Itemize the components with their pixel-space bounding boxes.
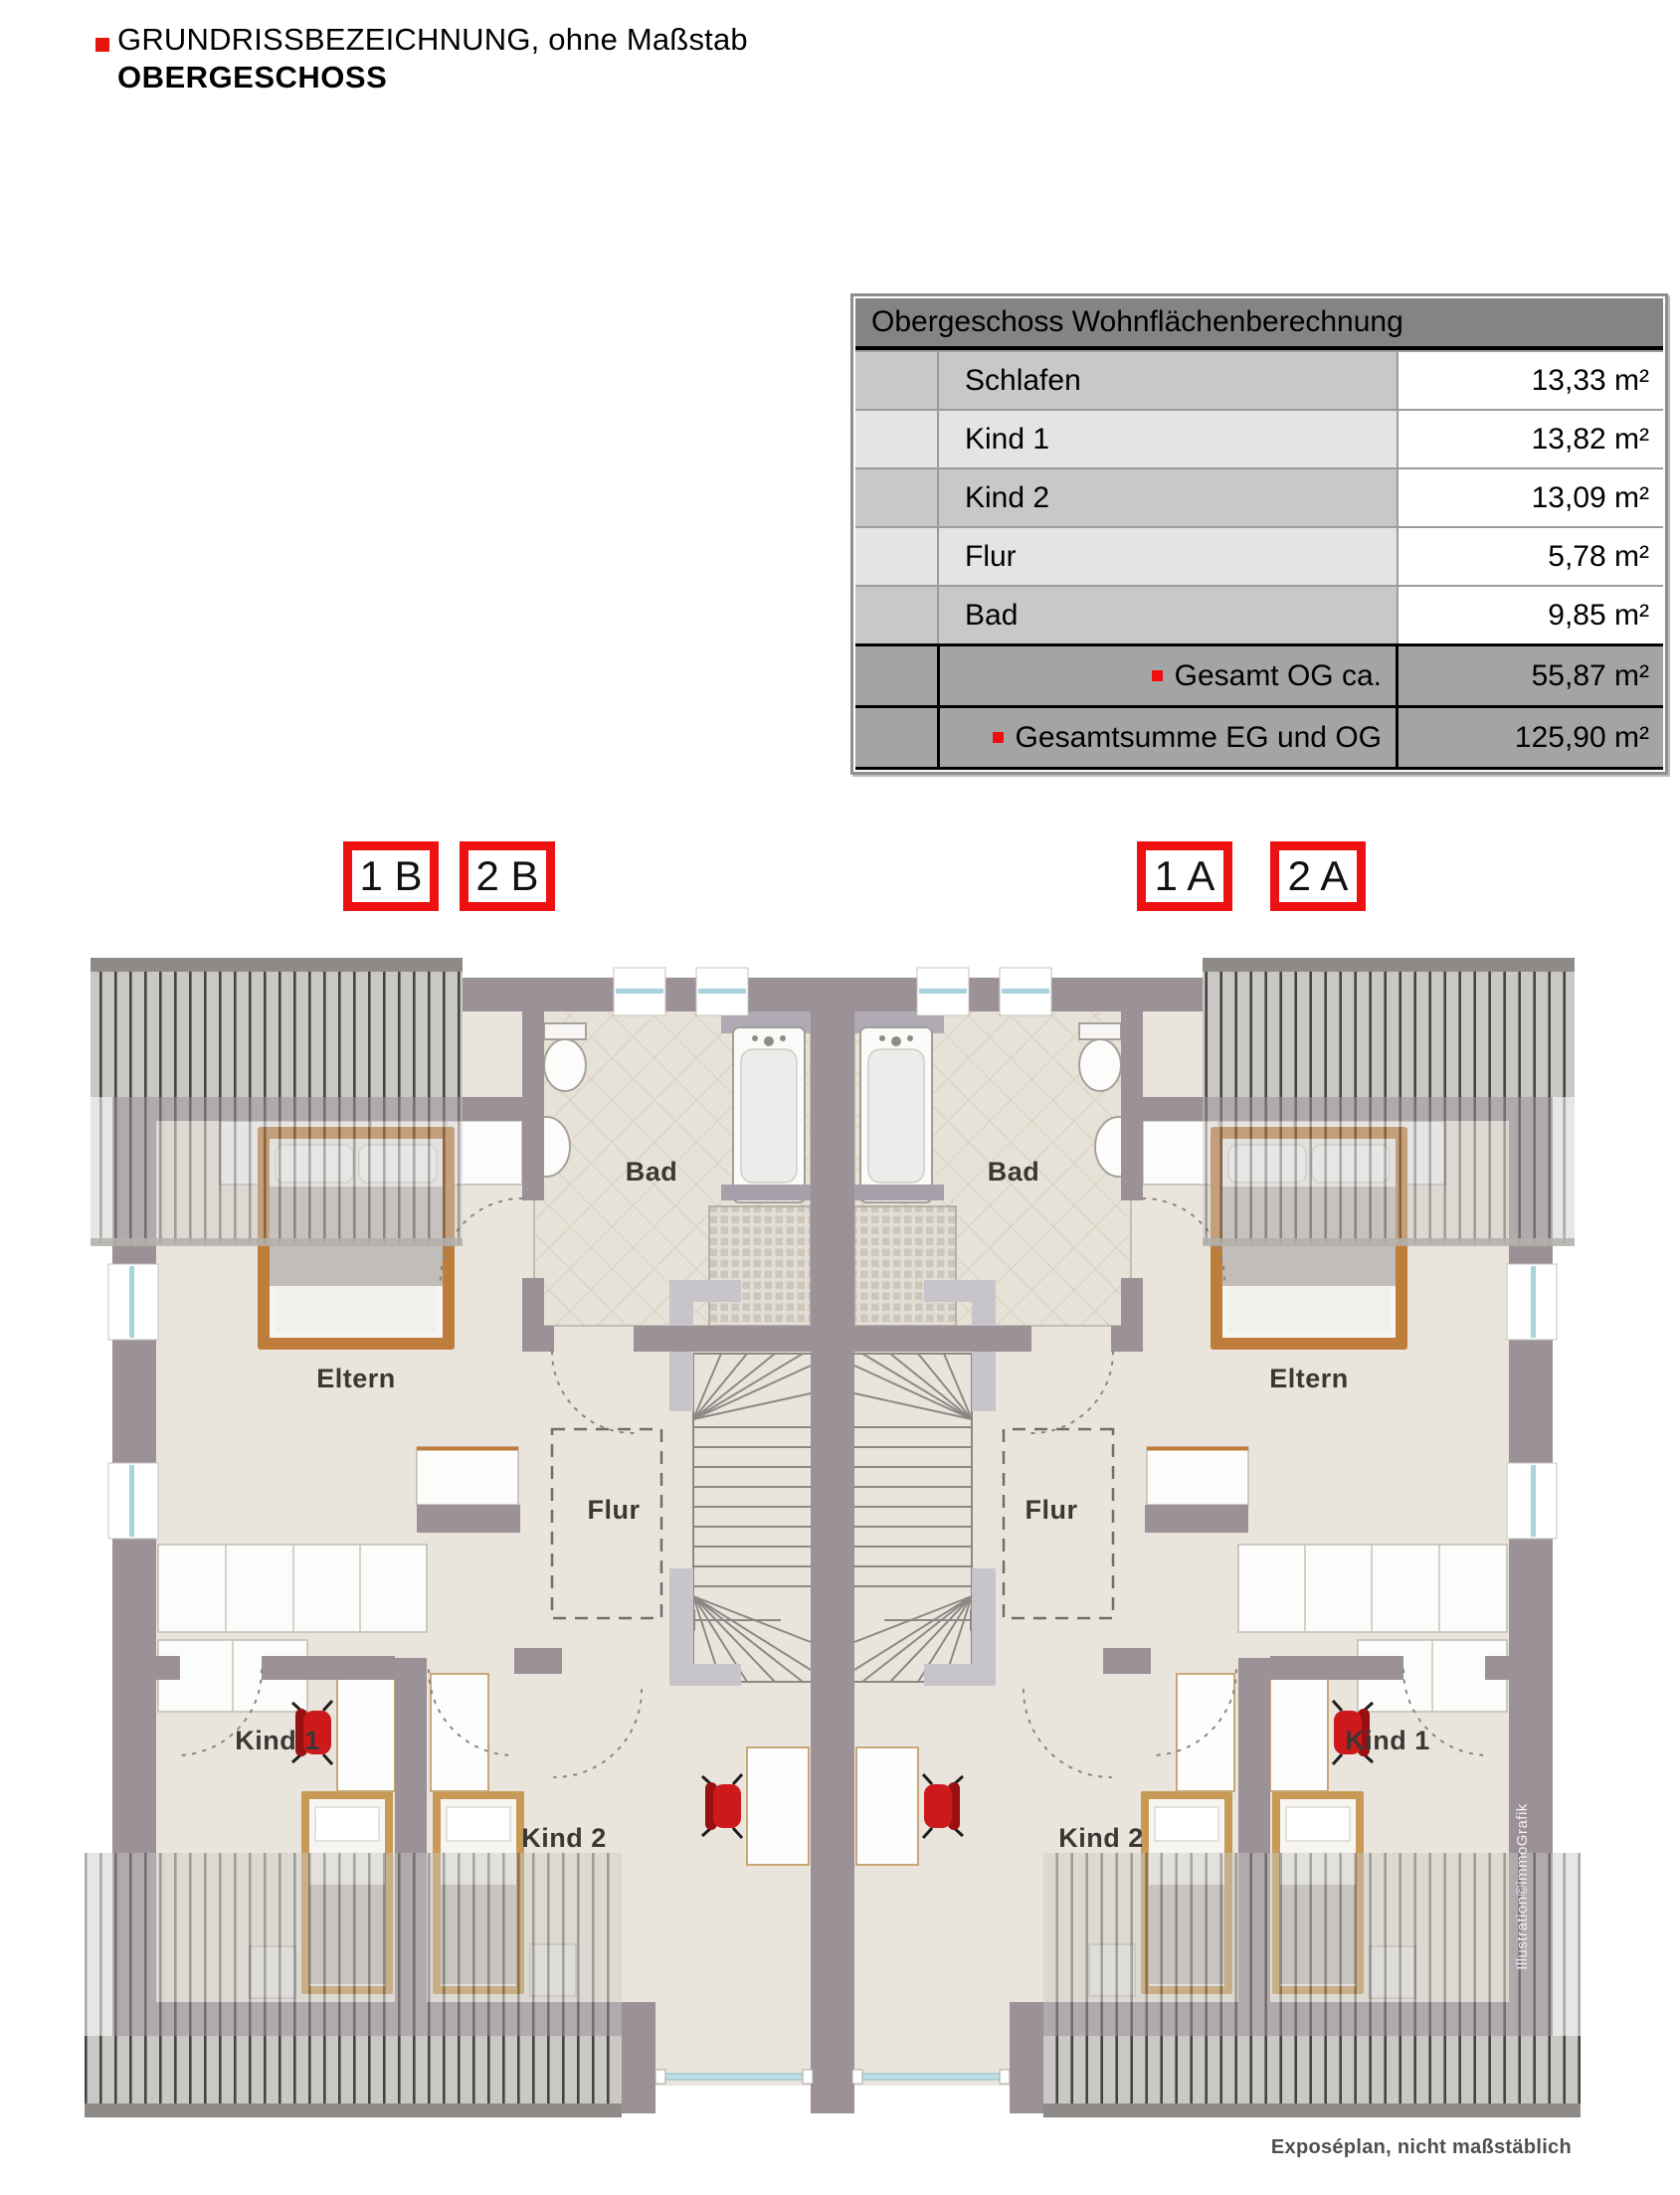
row-spacer-cell	[855, 708, 940, 767]
red-bullet-icon	[993, 732, 1004, 743]
area-table-title: Obergeschoss Wohnflächenberechnung	[855, 298, 1663, 350]
scale-footnote: Exposéplan, nicht maßstäblich	[1271, 2136, 1572, 2159]
table-row: Kind 1 13,82 m²	[855, 409, 1663, 467]
area-table: Obergeschoss Wohnflächenberechnung Schla…	[850, 293, 1668, 775]
red-bullet-icon	[1152, 670, 1163, 681]
room-area-value: 13,82 m²	[1397, 411, 1663, 467]
total-label: Gesamtsumme EG und OG	[1016, 721, 1382, 755]
unit-left	[85, 958, 833, 2117]
page-title: GRUNDRISSBEZEICHNUNG, ohne Maßstab	[117, 22, 748, 58]
unit-tag-2a: 2 A	[1270, 841, 1366, 911]
unit-tag-1b: 1 B	[343, 841, 439, 911]
room-label: Kind 1	[939, 411, 1397, 467]
unit-right	[833, 958, 1581, 2117]
room-label-kind2: Kind 2	[521, 1823, 607, 1853]
row-spacer-cell	[855, 352, 939, 409]
illustration-credit: Illustration©immoGrafik	[1514, 1803, 1531, 1970]
table-total-row: Gesamt OG ca. 55,87 m²	[855, 643, 1663, 705]
row-spacer-cell	[855, 411, 939, 467]
room-area-value: 13,33 m²	[1397, 352, 1663, 409]
total-value: 125,90 m²	[1396, 708, 1663, 767]
room-label-flur: Flur	[1026, 1495, 1078, 1525]
room-label-eltern: Eltern	[1269, 1364, 1349, 1393]
floor-plan: Bad Bad Eltern Eltern Flur Flur Kind 1 K…	[85, 952, 1581, 2121]
table-row: Flur 5,78 m²	[855, 526, 1663, 585]
room-label-kind2: Kind 2	[1058, 1823, 1144, 1853]
table-row: Bad 9,85 m²	[855, 585, 1663, 643]
table-row: Kind 2 13,09 m²	[855, 467, 1663, 526]
row-spacer-cell	[855, 528, 939, 585]
room-label-eltern: Eltern	[316, 1364, 396, 1393]
room-label-bad: Bad	[626, 1157, 678, 1187]
unit-tag-2b: 2 B	[460, 841, 555, 911]
table-row: Schlafen 13,33 m²	[855, 350, 1663, 409]
room-label-flur: Flur	[588, 1495, 641, 1525]
room-label: Kind 2	[939, 469, 1397, 526]
row-spacer-cell	[855, 646, 940, 705]
total-label: Gesamt OG ca.	[1175, 659, 1382, 693]
room-label: Schlafen	[939, 352, 1397, 409]
heading-bullet-icon	[95, 38, 109, 52]
room-label-kind1: Kind 1	[1345, 1726, 1430, 1755]
room-label: Flur	[939, 528, 1397, 585]
row-spacer-cell	[855, 587, 939, 643]
room-label: Bad	[939, 587, 1397, 643]
expose-page: GRUNDRISSBEZEICHNUNG, ohne Maßstab OBERG…	[0, 0, 1680, 2195]
page-subtitle: OBERGESCHOSS	[117, 60, 387, 95]
total-value: 55,87 m²	[1396, 646, 1663, 705]
unit-tag-1a: 1 A	[1137, 841, 1232, 911]
room-label-bad: Bad	[988, 1157, 1040, 1187]
total-label-cell: Gesamtsumme EG und OG	[940, 708, 1396, 767]
room-area-value: 5,78 m²	[1397, 528, 1663, 585]
room-area-value: 13,09 m²	[1397, 469, 1663, 526]
row-spacer-cell	[855, 469, 939, 526]
table-total-row: Gesamtsumme EG und OG 125,90 m²	[855, 705, 1663, 770]
room-area-value: 9,85 m²	[1397, 587, 1663, 643]
total-label-cell: Gesamt OG ca.	[940, 646, 1396, 705]
room-label-kind1: Kind 1	[235, 1726, 320, 1755]
